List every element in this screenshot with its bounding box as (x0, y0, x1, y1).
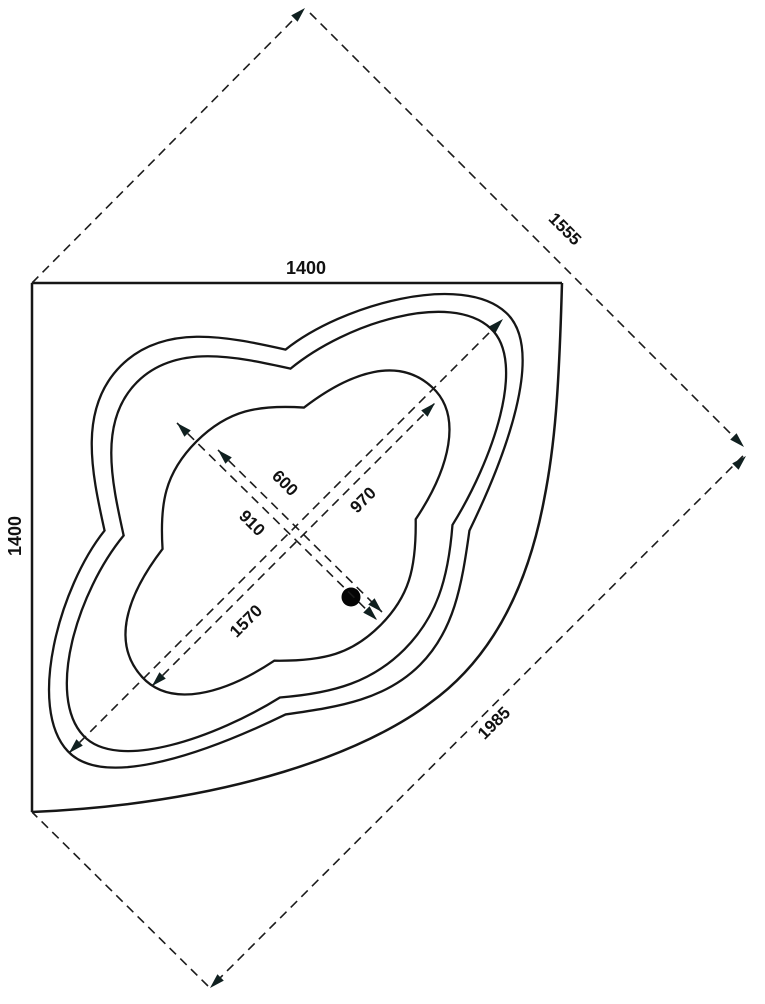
bathtub-technical-drawing: 1400 1400 1555 1985 1570 970 910 600 (0, 0, 765, 1004)
arrow-right-apex-lower-icon (732, 453, 749, 470)
arrow-970-ne-icon (421, 400, 438, 417)
extension-line-top (32, 11, 302, 283)
dim-line-600 (218, 450, 382, 612)
rim-inner-contour (0, 178, 608, 853)
dim-label-wall-left: 1400 (5, 516, 25, 556)
drain-dot (342, 588, 361, 607)
dim-label-600: 600 (268, 466, 301, 499)
dim-label-970: 970 (346, 483, 379, 516)
drawing-svg: 1400 1400 1555 1985 1570 970 910 600 (0, 0, 765, 1004)
dim-label-1555: 1555 (545, 209, 585, 249)
dim-label-1985: 1985 (474, 703, 514, 743)
dim-line-970 (152, 403, 435, 686)
extension-line-bottom (32, 812, 208, 986)
arrow-top-apex-icon (291, 5, 308, 22)
dimension-arrowheads (66, 5, 749, 991)
dim-label-910: 910 (235, 506, 268, 539)
dim-line-1985 (213, 456, 743, 985)
arrow-right-apex-upper-icon (730, 433, 747, 450)
dim-label-wall-top: 1400 (286, 258, 326, 278)
dim-line-1555 (310, 13, 741, 444)
